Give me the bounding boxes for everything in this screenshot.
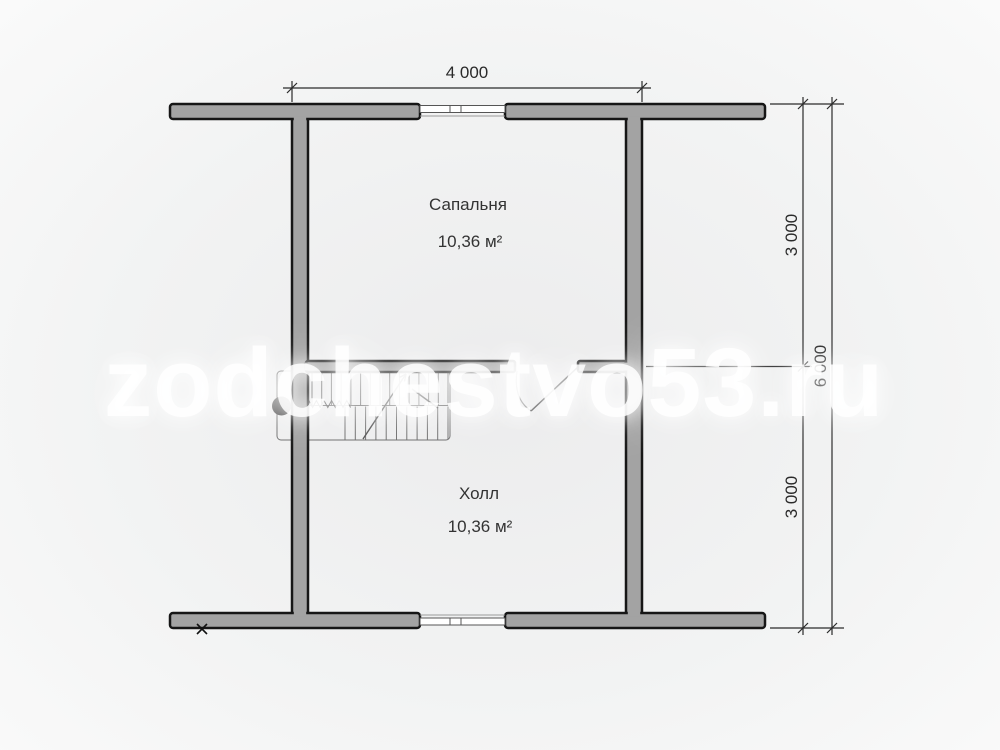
wall-interior-left [306, 361, 515, 372]
window-top-symbol [420, 106, 505, 117]
door-leaf [531, 367, 578, 411]
floor-plan: 4 000 3 000 3 000 6 000 Сапальня 10,36 м… [0, 0, 1000, 750]
room-bedroom-name: Сапальня [429, 195, 507, 214]
room-hall-name: Холл [459, 484, 499, 503]
stair-up-arrow-icon [363, 374, 438, 439]
dimension-right-upper-label: 3 000 [782, 214, 801, 257]
dimension-right-total-label: 6 000 [811, 345, 830, 388]
wall-interior-right [578, 361, 626, 372]
floor-plan-drawing: 4 000 3 000 3 000 6 000 Сапальня 10,36 м… [0, 0, 1000, 750]
dimension-top [283, 81, 651, 102]
dimension-top-label: 4 000 [446, 63, 489, 82]
dimension-right-lower-label: 3 000 [782, 476, 801, 519]
door-swing-arc-icon [516, 371, 531, 411]
door-symbol [516, 367, 578, 411]
stair-treads-lower [345, 407, 448, 440]
stair-newel-post [272, 397, 291, 416]
window-bottom-symbol [420, 615, 505, 625]
room-hall-area: 10,36 м² [448, 517, 513, 536]
room-bedroom-area: 10,36 м² [438, 232, 503, 251]
